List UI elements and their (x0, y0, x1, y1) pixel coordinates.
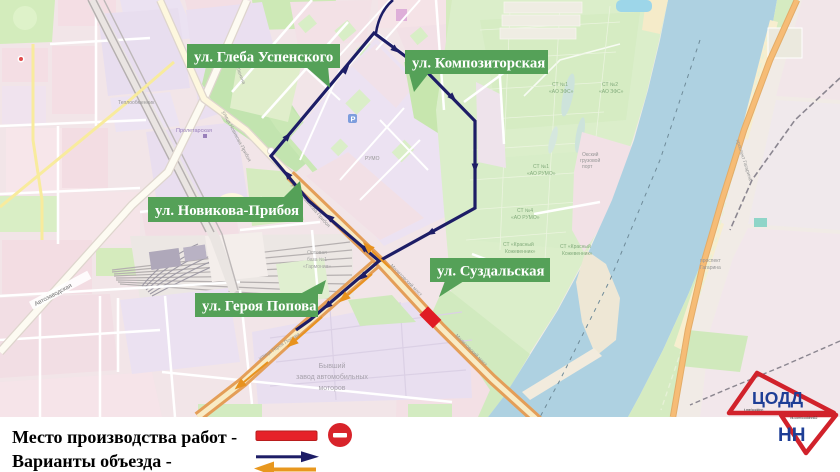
svg-text:ул. Новикова-Прибоя: ул. Новикова-Прибоя (155, 203, 299, 219)
svg-text:Варианты объезда -: Варианты объезда - (12, 451, 172, 471)
svg-text:ЦОДД: ЦОДД (752, 388, 804, 408)
svg-text:ул. Композиторская: ул. Композиторская (412, 56, 545, 72)
svg-text:ул. Глеба Успенского: ул. Глеба Успенского (194, 50, 333, 66)
svg-text:Место производства работ -: Место производства работ - (12, 427, 237, 447)
svg-text:t.me/coddnn: t.me/coddnn (744, 408, 763, 412)
svg-text:ул. Суздальская: ул. Суздальская (437, 264, 545, 280)
svg-text:ул. Героя Попова: ул. Героя Попова (202, 299, 317, 315)
svg-text:НН: НН (778, 425, 805, 446)
svg-text:vk.com/coddnn52: vk.com/coddnn52 (790, 416, 817, 420)
